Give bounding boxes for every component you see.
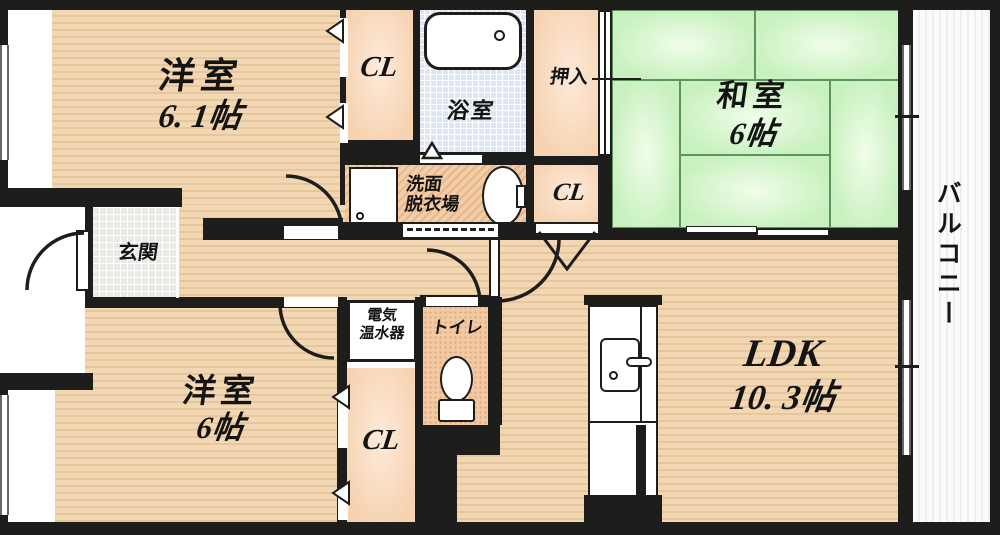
sliding-door-washitsu-ldk — [757, 229, 829, 236]
label-cl-bottom: CL — [360, 425, 401, 455]
label-washitsu-size: 6帖 — [727, 118, 778, 151]
label-ldk-size: 10. 3帖 — [728, 380, 838, 417]
label-western2-size: 6帖 — [194, 412, 245, 445]
label-heater-line2: 温水器 — [358, 326, 405, 342]
tatami-mat — [830, 80, 900, 228]
washbasin-tap — [516, 185, 526, 208]
label-oshiire: 押入 — [549, 68, 590, 88]
kitchen-sink-drain — [609, 371, 618, 380]
label-cl-mid: CL — [551, 180, 587, 206]
alcove-western2 — [8, 390, 55, 522]
label-entrance: 玄関 — [117, 242, 160, 263]
kitchen-counter-line — [590, 421, 656, 423]
label-western1: 洋室 — [156, 58, 245, 96]
accordion-door-dashes — [407, 228, 494, 231]
sliding-door-washitsu-ldk — [686, 226, 757, 233]
label-toilet: トイレ — [430, 320, 484, 338]
floorplan: 洋室 6. 1帖 洋室 6帖 和室 6帖 LDK 10. 3帖 浴室 押入 CL… — [0, 0, 1000, 535]
doorway-western2 — [284, 297, 338, 307]
wall — [415, 425, 500, 455]
wall — [0, 0, 1000, 10]
label-cl-top: CL — [358, 52, 399, 82]
window-mullion-tick — [895, 115, 919, 118]
window — [0, 45, 9, 160]
kitchen-base-bar — [636, 425, 646, 495]
label-washroom-line2: 脱衣場 — [404, 196, 461, 215]
closet-door-panel — [340, 18, 348, 77]
wall — [488, 297, 502, 425]
label-ldk: LDK — [741, 334, 825, 375]
closet-bottom-threshold — [347, 361, 415, 368]
wall — [0, 373, 93, 390]
wall — [0, 522, 1000, 535]
kitchen-base — [584, 495, 662, 522]
tatami-mat — [680, 155, 830, 228]
toilet-bowl — [440, 356, 473, 402]
sliding-door-oshiire — [600, 12, 604, 154]
bathtub — [424, 12, 522, 70]
closet-door-panel — [340, 103, 348, 143]
toilet-tank — [438, 399, 475, 422]
label-bath: 浴室 — [445, 100, 496, 123]
window-ldk-balcony — [902, 300, 911, 455]
washing-machine-drain — [356, 212, 364, 220]
entrance-porch — [0, 207, 85, 377]
entrance-door-leaf — [76, 230, 90, 291]
label-balcony: バルコニー — [934, 180, 960, 330]
label-western1-size: 6. 1帖 — [156, 100, 243, 135]
wall — [413, 8, 420, 160]
toilet-doorway — [426, 297, 478, 306]
window — [0, 395, 9, 515]
bathtub-drain — [494, 30, 505, 41]
wall — [340, 140, 420, 165]
sliding-door-oshiire — [606, 12, 610, 154]
closet-mid-opening — [536, 224, 598, 233]
tatami-mat — [755, 10, 900, 80]
ldk-door-leaf — [489, 238, 500, 298]
wall — [534, 156, 608, 165]
closet-door-panel — [338, 392, 348, 448]
entrance-step-line — [176, 207, 179, 298]
kitchen-counter-cap — [584, 295, 662, 305]
doorway-western1 — [284, 226, 338, 239]
wall — [415, 455, 457, 522]
bath-door-threshold — [420, 155, 482, 163]
label-heater-line1: 電気 — [366, 308, 398, 324]
label-washitsu: 和室 — [715, 80, 792, 113]
label-western2: 洋室 — [181, 374, 262, 409]
tatami-mat — [612, 10, 755, 80]
closet-door-panel — [338, 488, 348, 520]
alcove-western1 — [8, 10, 52, 190]
wall — [990, 0, 1000, 535]
wall — [526, 8, 534, 240]
kitchen-faucet — [626, 357, 652, 367]
window-mullion-tick — [895, 365, 919, 368]
kitchen-counter — [588, 305, 658, 498]
tatami-mat — [612, 80, 680, 228]
washroom-accordion-opening — [403, 224, 498, 237]
label-washroom-line1: 洗面 — [405, 176, 444, 195]
